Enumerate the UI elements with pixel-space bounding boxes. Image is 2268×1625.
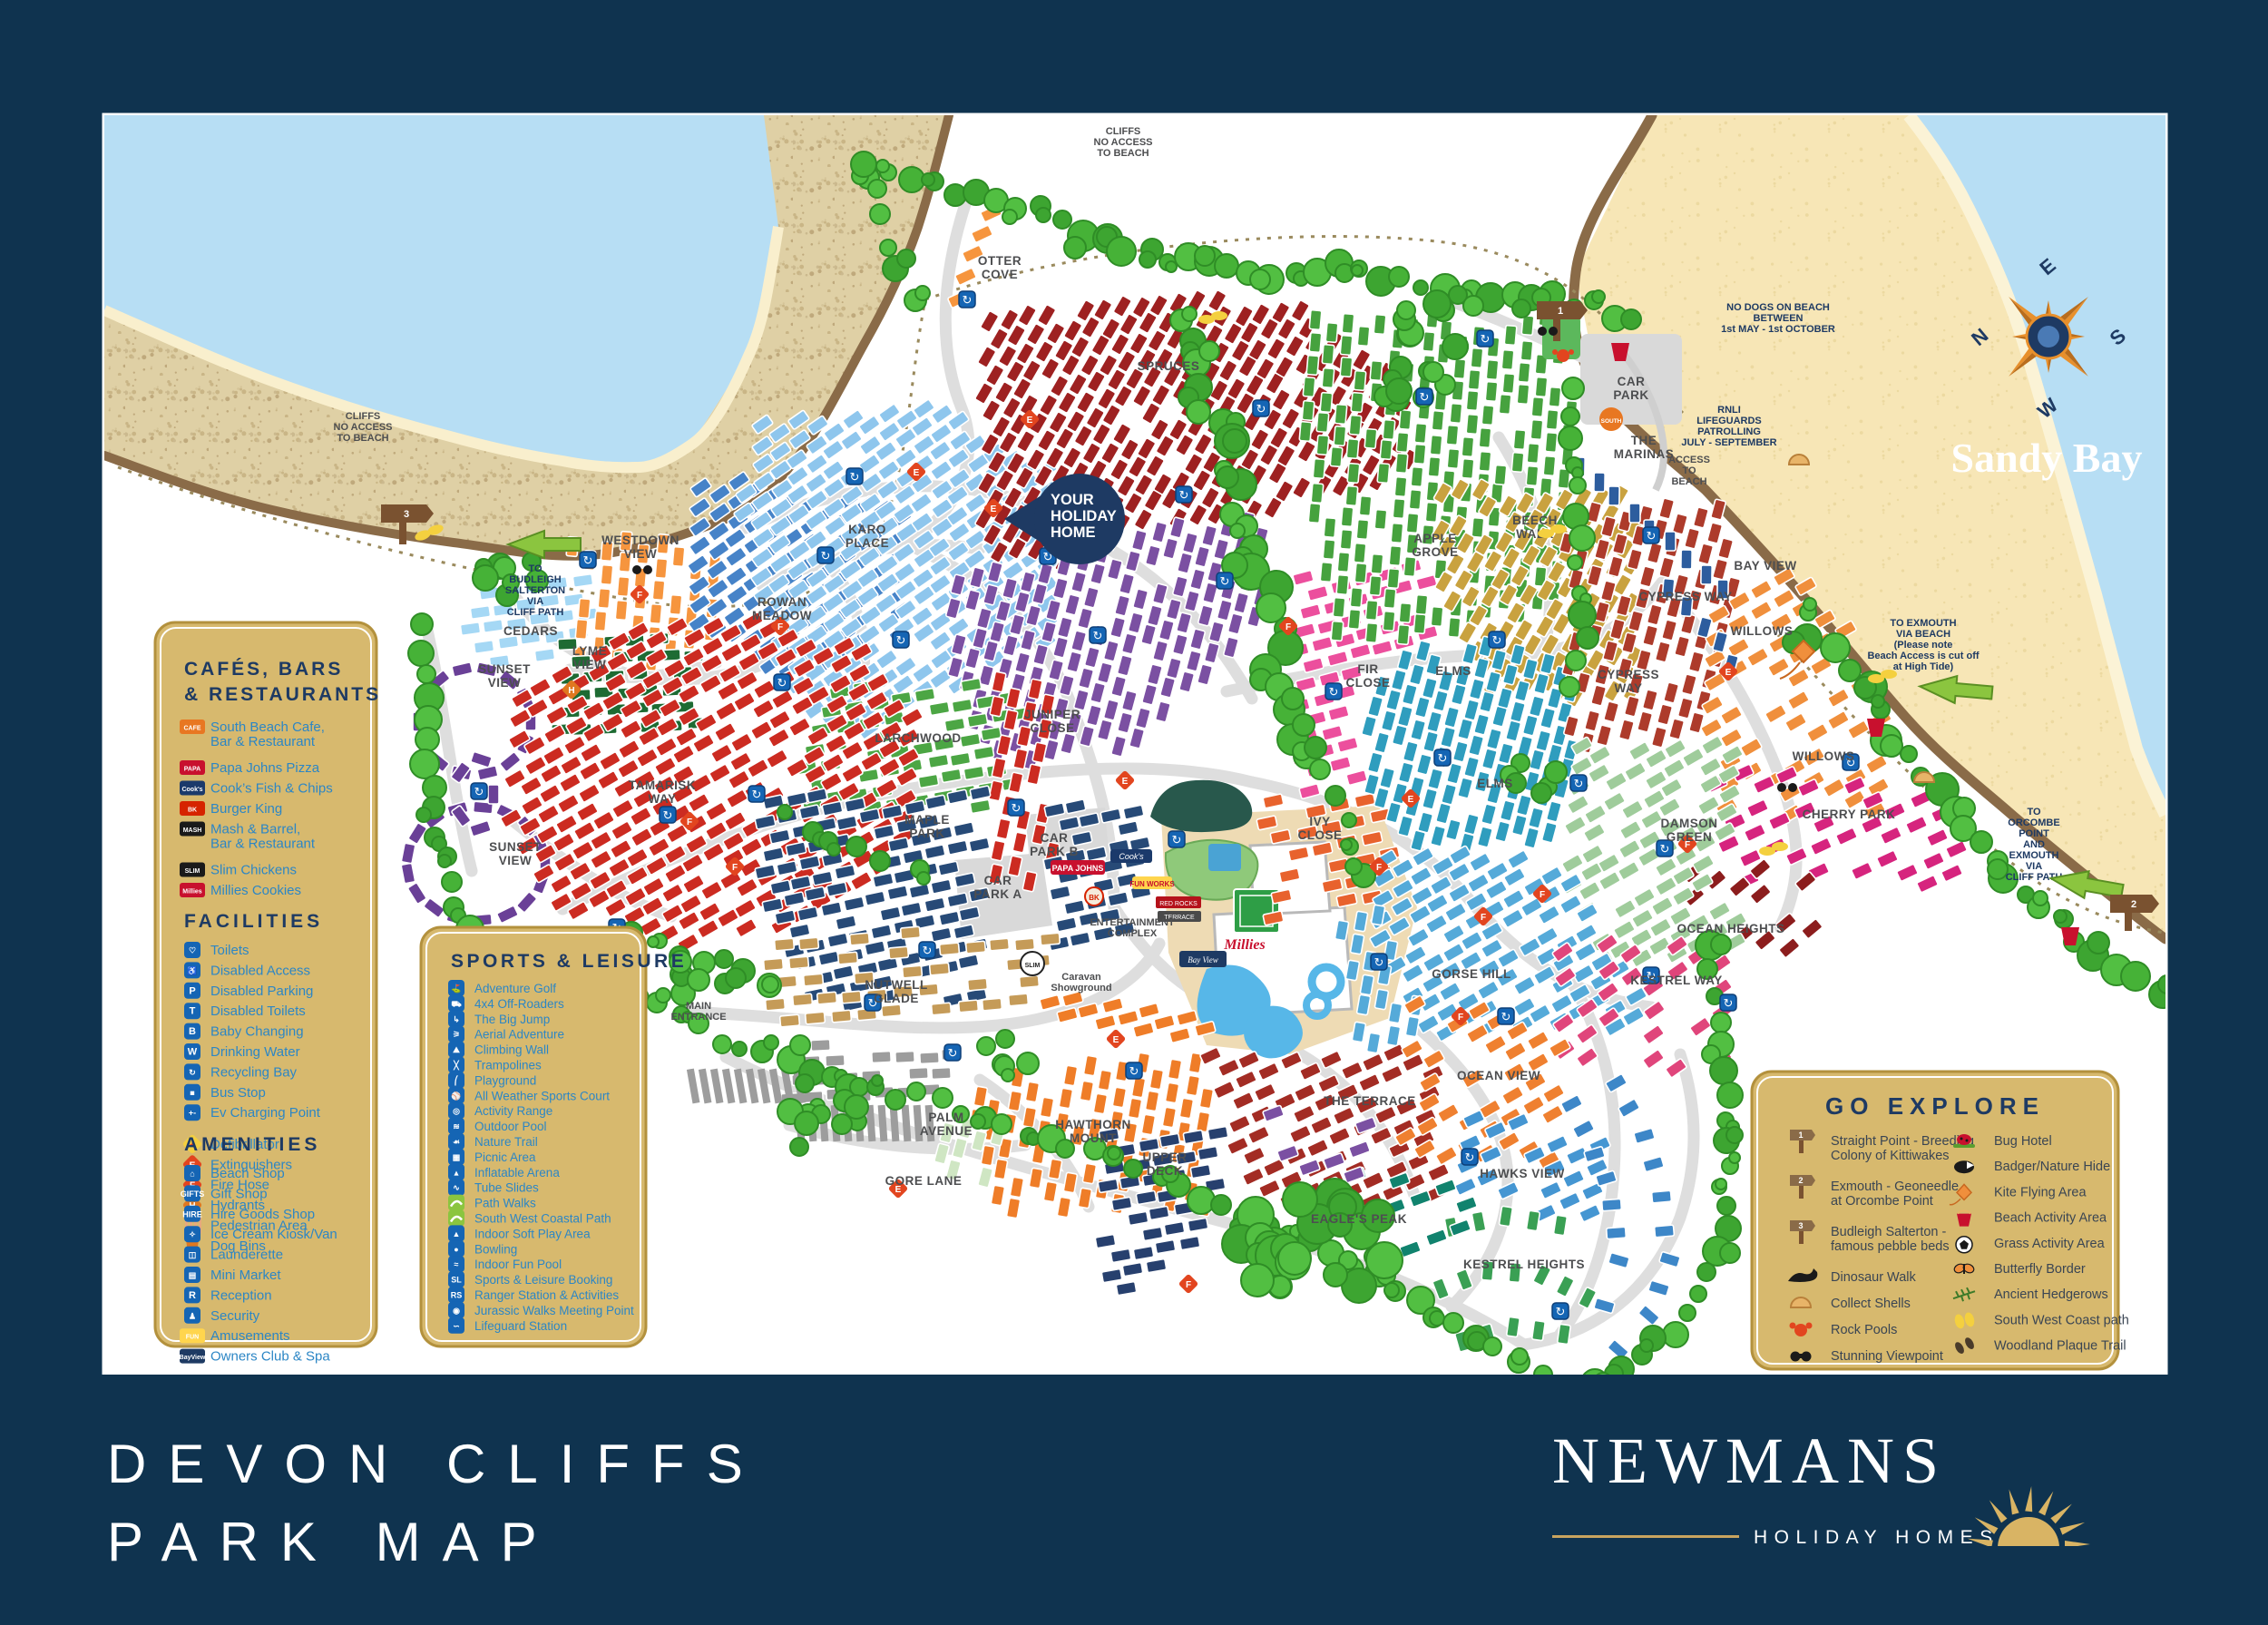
- svg-text:HOLIDAY: HOLIDAY: [1051, 508, 1117, 524]
- svg-text:F: F: [1458, 1013, 1463, 1023]
- svg-text:All Weather Sports Court: All Weather Sports Court: [474, 1089, 610, 1102]
- svg-text:MAPLE: MAPLE: [904, 813, 950, 827]
- svg-text:EAGLE'S PEAK: EAGLE'S PEAK: [1311, 1212, 1407, 1226]
- svg-text:BUDLEIGH: BUDLEIGH: [509, 574, 562, 585]
- svg-text:Papa Johns Pizza: Papa Johns Pizza: [210, 760, 320, 776]
- svg-text:↻: ↻: [1438, 751, 1448, 765]
- svg-text:Sports & Leisure Booking: Sports & Leisure Booking: [474, 1273, 612, 1287]
- svg-text:T: T: [190, 1006, 196, 1017]
- svg-text:AVENUE: AVENUE: [920, 1124, 973, 1138]
- svg-text:↻: ↻: [583, 553, 593, 567]
- svg-text:Indoor Fun Pool: Indoor Fun Pool: [474, 1258, 562, 1271]
- svg-text:Dinosaur Walk: Dinosaur Walk: [1831, 1270, 1916, 1285]
- svg-text:Millies: Millies: [1223, 937, 1265, 953]
- svg-text:↻: ↻: [948, 1046, 958, 1060]
- svg-text:↻: ↻: [1556, 1305, 1566, 1318]
- svg-text:BEECH: BEECH: [1512, 514, 1558, 527]
- svg-text:≈: ≈: [455, 1260, 459, 1269]
- svg-text:↳: ↳: [453, 1014, 460, 1023]
- svg-text:CLOSE: CLOSE: [1345, 676, 1390, 690]
- svg-text:E: E: [1408, 795, 1414, 805]
- svg-text:WESTDOWN: WESTDOWN: [601, 534, 679, 547]
- svg-text:✧: ✧: [189, 1230, 196, 1239]
- svg-text:ENTERTAINMENT: ENTERTAINMENT: [1090, 917, 1175, 928]
- svg-text:Caravan: Caravan: [1061, 972, 1101, 983]
- svg-text:◎: ◎: [453, 1107, 460, 1116]
- svg-text:PAPA: PAPA: [184, 767, 200, 773]
- svg-text:Jurassic Walks Meeting Point: Jurassic Walks Meeting Point: [474, 1304, 634, 1317]
- svg-text:Disabled Access: Disabled Access: [210, 963, 310, 978]
- svg-text:↻: ↻: [189, 1068, 196, 1077]
- svg-text:♡: ♡: [189, 946, 196, 955]
- svg-text:DECK: DECK: [1147, 1164, 1183, 1178]
- svg-text:Bus Stop: Bus Stop: [210, 1085, 266, 1101]
- svg-text:Toilets: Toilets: [210, 943, 249, 958]
- svg-text:H: H: [568, 686, 574, 696]
- svg-text:ROWAN: ROWAN: [758, 595, 807, 609]
- svg-text:↻: ↻: [474, 785, 484, 798]
- svg-text:KESTREL WAY: KESTREL WAY: [1630, 974, 1723, 987]
- svg-text:(Please note: (Please note: [1894, 640, 1953, 651]
- svg-text:TO EXMOUTH: TO EXMOUTH: [1890, 618, 1956, 629]
- svg-text:Budleigh Salterton -: Budleigh Salterton -: [1831, 1225, 1947, 1239]
- svg-text:Mash & Barrel,: Mash & Barrel,: [210, 822, 300, 837]
- svg-text:Kite Flying Area: Kite Flying Area: [1994, 1185, 2087, 1199]
- svg-text:FIR: FIR: [1357, 662, 1378, 676]
- svg-text:Playground: Playground: [474, 1073, 536, 1087]
- svg-text:R: R: [189, 1290, 196, 1301]
- svg-text:HAWKS VIEW: HAWKS VIEW: [1480, 1167, 1565, 1180]
- svg-text:↻: ↻: [1374, 955, 1384, 969]
- svg-text:↻: ↻: [1220, 574, 1230, 588]
- svg-text:NUTWELL: NUTWELL: [865, 978, 927, 992]
- svg-text:Baby Changing: Baby Changing: [210, 1024, 304, 1040]
- svg-text:TO: TO: [1682, 465, 1696, 476]
- svg-text:Climbing Wall: Climbing Wall: [474, 1043, 549, 1057]
- svg-text:Nature Trail: Nature Trail: [474, 1135, 538, 1149]
- svg-text:TO BEACH: TO BEACH: [337, 433, 388, 444]
- svg-text:CYPRESS: CYPRESS: [1598, 668, 1659, 681]
- svg-text:F: F: [1186, 1280, 1191, 1290]
- svg-text:SLIM: SLIM: [1025, 963, 1041, 969]
- svg-text:PAPA JOHNS: PAPA JOHNS: [1052, 864, 1104, 873]
- svg-text:Straight Point - Breeding: Straight Point - Breeding: [1831, 1134, 1974, 1149]
- svg-text:OTTER: OTTER: [978, 254, 1022, 268]
- svg-text:at Orcombe Point: at Orcombe Point: [1831, 1194, 1933, 1209]
- svg-text:Badger/Nature Hide: Badger/Nature Hide: [1994, 1160, 2110, 1174]
- svg-text:LARCHWOOD: LARCHWOOD: [875, 731, 961, 745]
- svg-text:Bar & Restaurant: Bar & Restaurant: [210, 837, 316, 852]
- svg-text:F: F: [1286, 622, 1291, 632]
- svg-text:P: P: [189, 985, 195, 996]
- svg-text:South West Coast path: South West Coast path: [1994, 1313, 2129, 1327]
- svg-text:ENTRANCE: ENTRANCE: [670, 1012, 726, 1023]
- svg-text:Disabled Toilets: Disabled Toilets: [210, 1003, 306, 1019]
- svg-text:Grass Activity Area: Grass Activity Area: [1994, 1237, 2106, 1251]
- svg-text:MARINAS: MARINAS: [1614, 447, 1675, 461]
- svg-text:Bowling: Bowling: [474, 1242, 517, 1256]
- svg-text:VIA BEACH: VIA BEACH: [1896, 629, 1950, 640]
- svg-text:MASH: MASH: [183, 827, 202, 834]
- svg-text:ELMS: ELMS: [1435, 664, 1471, 678]
- svg-text:3: 3: [1798, 1221, 1803, 1230]
- svg-text:FUN: FUN: [186, 1335, 199, 1341]
- svg-text:CAR: CAR: [1618, 375, 1646, 388]
- svg-text:CAFÉS, BARS: CAFÉS, BARS: [184, 659, 343, 680]
- svg-text:COMPLEX: COMPLEX: [1108, 928, 1158, 939]
- svg-text:SUNSET: SUNSET: [478, 662, 531, 676]
- svg-text:HOLIDAY HOMES: HOLIDAY HOMES: [1754, 1527, 1999, 1548]
- svg-text:WAY: WAY: [648, 792, 676, 806]
- svg-text:Launderette: Launderette: [210, 1248, 283, 1263]
- svg-text:↻: ↻: [1012, 801, 1022, 815]
- svg-text:≋: ≋: [453, 1122, 460, 1131]
- svg-text:PLACE: PLACE: [846, 536, 889, 550]
- svg-text:↻: ↻: [1481, 332, 1491, 346]
- svg-text:Tube Slides: Tube Slides: [474, 1181, 539, 1195]
- svg-text:▦: ▦: [453, 1152, 461, 1161]
- svg-text:↻: ↻: [1329, 685, 1339, 699]
- svg-text:⎛: ⎛: [455, 1075, 459, 1086]
- svg-text:CAR: CAR: [984, 874, 1012, 887]
- svg-text:RNLI: RNLI: [1717, 405, 1741, 416]
- svg-text:OCEAN VIEW: OCEAN VIEW: [1457, 1069, 1540, 1082]
- svg-text:BAY VIEW: BAY VIEW: [1734, 559, 1796, 573]
- svg-text:↻: ↻: [1492, 633, 1502, 647]
- svg-text:↻: ↻: [1465, 1150, 1475, 1164]
- svg-text:F: F: [777, 622, 783, 632]
- svg-text:Colony of Kittiwakes: Colony of Kittiwakes: [1831, 1149, 1950, 1163]
- svg-text:VIEW: VIEW: [499, 854, 533, 867]
- svg-text:↻: ↻: [963, 293, 973, 307]
- svg-text:↻: ↻: [1256, 402, 1266, 416]
- svg-text:MEADOW: MEADOW: [752, 609, 812, 622]
- svg-text:↻: ↻: [752, 788, 762, 801]
- svg-text:●: ●: [454, 1245, 458, 1254]
- svg-text:⛟: ⛟: [451, 999, 462, 1008]
- svg-text:VIEW: VIEW: [573, 658, 607, 671]
- svg-text:VIEW: VIEW: [488, 676, 522, 690]
- svg-text:PATROLLING: PATROLLING: [1697, 426, 1761, 437]
- svg-text:Rock Pools: Rock Pools: [1831, 1323, 1897, 1337]
- svg-text:NO DOGS ON BEACH: NO DOGS ON BEACH: [1726, 302, 1830, 313]
- svg-text:LIFEGUARDS: LIFEGUARDS: [1696, 416, 1762, 426]
- svg-text:⚞: ⚞: [453, 1030, 460, 1039]
- svg-text:Woodland Plaque Trail: Woodland Plaque Trail: [1994, 1339, 2126, 1354]
- svg-text:COVE: COVE: [982, 268, 1018, 281]
- svg-text:PARK MAP: PARK MAP: [107, 1512, 559, 1572]
- svg-text:FACILITIES: FACILITIES: [184, 911, 323, 932]
- svg-text:Millies: Millies: [182, 889, 202, 896]
- svg-text:Drinking Water: Drinking Water: [210, 1044, 300, 1060]
- svg-text:F: F: [1376, 863, 1382, 873]
- svg-text:THE TERRACE: THE TERRACE: [1324, 1094, 1416, 1108]
- svg-text:SLIM: SLIM: [185, 868, 200, 875]
- svg-text:CLOSE: CLOSE: [1297, 828, 1342, 842]
- svg-text:HIRE: HIRE: [182, 1209, 202, 1219]
- svg-text:Millies Cookies: Millies Cookies: [210, 883, 301, 898]
- svg-text:Beach Shop: Beach Shop: [210, 1166, 285, 1181]
- svg-text:PARK: PARK: [909, 827, 944, 840]
- svg-text:THE: THE: [1631, 434, 1657, 447]
- svg-text:BEACH: BEACH: [1671, 476, 1706, 487]
- svg-text:Bay View: Bay View: [1188, 955, 1218, 964]
- svg-text:▴: ▴: [454, 1168, 459, 1177]
- svg-text:Disabled Parking: Disabled Parking: [210, 984, 313, 999]
- svg-text:DEVON CLIFFS: DEVON CLIFFS: [107, 1434, 765, 1494]
- svg-text:ELMS: ELMS: [1477, 777, 1513, 790]
- svg-text:VIA: VIA: [2026, 861, 2042, 872]
- svg-text:Bar & Restaurant: Bar & Restaurant: [210, 734, 316, 749]
- svg-text:Ranger Station & Activities: Ranger Station & Activities: [474, 1288, 619, 1302]
- svg-text:RED ROCKS: RED ROCKS: [1159, 901, 1198, 907]
- svg-text:Amusements: Amusements: [210, 1328, 290, 1344]
- svg-text:UPPER: UPPER: [1142, 1150, 1187, 1164]
- svg-text:famous pebble beds: famous pebble beds: [1831, 1239, 1950, 1254]
- svg-text:↻: ↻: [1179, 488, 1189, 502]
- svg-text:Reception: Reception: [210, 1287, 272, 1303]
- svg-text:▤: ▤: [189, 1271, 197, 1280]
- svg-text:CAFE: CAFE: [183, 726, 200, 732]
- svg-text:Cook's: Cook's: [1119, 852, 1144, 861]
- svg-text:LYME: LYME: [572, 644, 607, 658]
- svg-text:TO: TO: [528, 563, 543, 574]
- svg-text:NO ACCESS: NO ACCESS: [334, 422, 393, 433]
- svg-text:⛳: ⛳: [451, 984, 461, 994]
- svg-text:Collect Shells: Collect Shells: [1831, 1297, 1911, 1311]
- svg-text:Security: Security: [210, 1308, 260, 1324]
- svg-text:GORSE HILL: GORSE HILL: [1432, 967, 1511, 981]
- svg-text:↻: ↻: [923, 944, 933, 957]
- svg-text:1: 1: [1558, 306, 1563, 317]
- svg-text:↻: ↻: [1172, 833, 1182, 847]
- svg-text:Owners Club & Spa: Owners Club & Spa: [210, 1349, 330, 1365]
- svg-text:Indoor Soft Play Area: Indoor Soft Play Area: [474, 1227, 591, 1240]
- svg-text:WILLOWS: WILLOWS: [1731, 624, 1794, 638]
- svg-text:⌂: ⌂: [190, 1170, 194, 1179]
- svg-text:⚾: ⚾: [450, 1091, 461, 1101]
- svg-text:◉: ◉: [453, 1306, 460, 1315]
- svg-text:▲: ▲: [453, 1229, 461, 1238]
- svg-text:South Beach Cafe,: South Beach Cafe,: [210, 720, 325, 735]
- svg-text:↻: ↻: [1724, 996, 1734, 1010]
- svg-text:SL: SL: [451, 1276, 462, 1285]
- svg-text:⛰: ⛰: [452, 1045, 460, 1054]
- svg-text:2: 2: [2131, 899, 2136, 910]
- svg-text:BETWEEN: BETWEEN: [1754, 313, 1804, 324]
- svg-text:MAIN: MAIN: [686, 1001, 711, 1012]
- svg-text:Trampolines: Trampolines: [474, 1059, 542, 1072]
- svg-text:↻: ↻: [1093, 629, 1103, 642]
- svg-text:Burger King: Burger King: [210, 801, 282, 817]
- svg-text:CHERRY PARK: CHERRY PARK: [1803, 808, 1896, 821]
- svg-text:NEWMANS: NEWMANS: [1552, 1424, 1947, 1497]
- svg-text:WAY: WAY: [1614, 681, 1642, 695]
- svg-text:Outdoor Pool: Outdoor Pool: [474, 1120, 547, 1133]
- svg-text:FUN WORKS: FUN WORKS: [1129, 880, 1175, 888]
- svg-text:+-: +-: [189, 1109, 196, 1118]
- svg-text:WILLOWS: WILLOWS: [1793, 749, 1855, 763]
- svg-text:Mini Market: Mini Market: [210, 1268, 281, 1283]
- svg-text:♿: ♿: [187, 965, 197, 975]
- svg-text:SALTERTON: SALTERTON: [505, 585, 565, 596]
- svg-text:Bug Hotel: Bug Hotel: [1994, 1134, 2052, 1149]
- svg-text:GORE LANE: GORE LANE: [885, 1174, 963, 1188]
- svg-text:E: E: [914, 468, 920, 478]
- svg-text:Cook's: Cook's: [181, 787, 202, 793]
- svg-text:Slim Chickens: Slim Chickens: [210, 863, 297, 878]
- svg-text:4x4 Off-Roaders: 4x4 Off-Roaders: [474, 997, 564, 1011]
- svg-text:↻: ↻: [821, 549, 831, 563]
- svg-text:Picnic Area: Picnic Area: [474, 1150, 536, 1164]
- svg-text:E: E: [1027, 416, 1033, 426]
- svg-text:PARK B: PARK B: [1030, 845, 1079, 858]
- svg-text:Showground: Showground: [1051, 983, 1111, 994]
- svg-text:W: W: [188, 1047, 198, 1058]
- svg-text:E: E: [1113, 1035, 1119, 1045]
- svg-text:F: F: [687, 817, 692, 827]
- svg-text:CAR: CAR: [1041, 831, 1069, 845]
- svg-text:↻: ↻: [1420, 390, 1430, 404]
- svg-text:Ev Charging Point: Ev Charging Point: [210, 1105, 321, 1121]
- svg-text:Exmouth - Geoneedle: Exmouth - Geoneedle: [1831, 1180, 1959, 1194]
- svg-text:CYPRESS WAY: CYPRESS WAY: [1638, 590, 1732, 603]
- svg-text:◫: ◫: [189, 1250, 197, 1259]
- svg-text:↻: ↻: [1129, 1064, 1139, 1078]
- svg-text:KARO: KARO: [848, 523, 886, 536]
- svg-text:B: B: [189, 1026, 196, 1037]
- svg-text:TAMARISK: TAMARISK: [629, 778, 696, 792]
- svg-text:∽: ∽: [453, 1321, 460, 1330]
- svg-text:Ancient Hedgerows: Ancient Hedgerows: [1994, 1287, 2108, 1302]
- svg-text:DAMSON: DAMSON: [1661, 817, 1718, 830]
- svg-text:Stunning Viewpoint: Stunning Viewpoint: [1831, 1349, 1943, 1364]
- svg-text:Beach Access is cut off: Beach Access is cut off: [1867, 651, 1979, 661]
- svg-text:PALM: PALM: [928, 1111, 963, 1124]
- svg-text:1: 1: [1798, 1131, 1803, 1140]
- svg-text:↻: ↻: [1660, 842, 1670, 856]
- svg-text:APPLE: APPLE: [1413, 532, 1457, 545]
- svg-text:GROVE: GROVE: [1412, 545, 1458, 559]
- svg-text:HOME: HOME: [1051, 524, 1096, 541]
- svg-text:BayView: BayView: [180, 1355, 206, 1361]
- svg-text:POINT: POINT: [2019, 828, 2049, 839]
- svg-text:SUNSET: SUNSET: [489, 840, 542, 854]
- svg-text:TO BEACH: TO BEACH: [1097, 148, 1149, 159]
- svg-text:Lifeguard Station: Lifeguard Station: [474, 1319, 567, 1333]
- svg-text:CLIFFS: CLIFFS: [1106, 126, 1141, 137]
- svg-text:Ice Cream Kiosk/Van: Ice Cream Kiosk/Van: [210, 1227, 337, 1242]
- svg-text:Inflatable Arena: Inflatable Arena: [474, 1166, 560, 1180]
- svg-text:JUNIPER: JUNIPER: [1024, 708, 1080, 721]
- svg-text:↻: ↻: [663, 808, 673, 822]
- svg-text:IVY: IVY: [1309, 815, 1330, 828]
- svg-text:E: E: [991, 504, 997, 514]
- svg-text:at High Tide): at High Tide): [1893, 661, 1954, 672]
- svg-text:HAWTHORN: HAWTHORN: [1055, 1118, 1131, 1131]
- svg-text:Recycling Bay: Recycling Bay: [210, 1064, 298, 1080]
- svg-text:Butterfly Border: Butterfly Border: [1994, 1262, 2086, 1277]
- svg-text:GLADE: GLADE: [874, 992, 919, 1005]
- svg-text:Activity Range: Activity Range: [474, 1104, 552, 1118]
- svg-text:Hire Goods Shop: Hire Goods Shop: [210, 1207, 315, 1222]
- svg-text:♟: ♟: [189, 1311, 196, 1320]
- svg-text:↻: ↻: [850, 470, 860, 484]
- svg-text:2: 2: [1798, 1176, 1803, 1185]
- svg-text:ACCESS: ACCESS: [1668, 455, 1710, 465]
- svg-text:E: E: [1122, 777, 1129, 787]
- svg-text:Beach Activity Area: Beach Activity Area: [1994, 1211, 2107, 1226]
- svg-text:3: 3: [404, 509, 409, 520]
- svg-text:EXMOUTH: EXMOUTH: [2009, 850, 2059, 861]
- svg-text:CLOSE: CLOSE: [1030, 721, 1074, 735]
- svg-text:Gift Shop: Gift Shop: [210, 1186, 268, 1201]
- svg-text:AMENITIES: AMENITIES: [184, 1134, 320, 1155]
- svg-text:↻: ↻: [1647, 529, 1657, 543]
- svg-text:YOUR: YOUR: [1051, 492, 1094, 508]
- svg-text:Aerial Adventure: Aerial Adventure: [474, 1028, 564, 1042]
- svg-text:Cook’s Fish & Chips: Cook’s Fish & Chips: [210, 781, 333, 797]
- svg-text:↻: ↻: [1574, 777, 1584, 790]
- svg-text:VIA: VIA: [527, 596, 543, 607]
- svg-text:VIEW: VIEW: [624, 547, 658, 561]
- svg-text:CLIFFS: CLIFFS: [346, 411, 381, 422]
- svg-text:GREEN: GREEN: [1667, 830, 1713, 844]
- svg-text:CLIFF PATH: CLIFF PATH: [507, 607, 564, 618]
- svg-text:PARK A: PARK A: [973, 887, 1022, 901]
- svg-text:Path Walks: Path Walks: [474, 1197, 536, 1210]
- svg-text:BK: BK: [1089, 894, 1100, 902]
- svg-text:MOUNT: MOUNT: [1070, 1131, 1117, 1145]
- svg-text:F: F: [732, 863, 738, 873]
- svg-text:F: F: [637, 591, 642, 601]
- svg-text:↻: ↻: [777, 676, 787, 690]
- svg-text:SOUTH: SOUTH: [1601, 418, 1622, 425]
- svg-text:NO ACCESS: NO ACCESS: [1094, 137, 1153, 148]
- svg-text:SPORTS & LEISURE: SPORTS & LEISURE: [451, 951, 687, 972]
- svg-text:GIFTS: GIFTS: [181, 1189, 205, 1199]
- svg-text:☙: ☙: [453, 1138, 460, 1147]
- svg-text:F: F: [1540, 890, 1545, 900]
- svg-text:CEDARS: CEDARS: [503, 624, 558, 638]
- svg-text:The Big Jump: The Big Jump: [474, 1013, 550, 1026]
- svg-text:Adventure Golf: Adventure Golf: [474, 982, 556, 995]
- svg-text:F: F: [1481, 913, 1486, 923]
- svg-text:E: E: [1725, 668, 1732, 678]
- svg-text:RS: RS: [451, 1291, 463, 1300]
- svg-text:TO: TO: [2027, 807, 2041, 817]
- svg-text:PARK: PARK: [1613, 388, 1648, 402]
- svg-text:∿: ∿: [453, 1183, 460, 1192]
- svg-text:Sandy Bay: Sandy Bay: [1951, 435, 2143, 481]
- svg-text:↻: ↻: [1501, 1010, 1511, 1023]
- svg-text:BK: BK: [188, 808, 197, 814]
- svg-text:& RESTAURANTS: & RESTAURANTS: [184, 684, 381, 705]
- svg-text:1st MAY - 1st OCTOBER: 1st MAY - 1st OCTOBER: [1721, 324, 1835, 335]
- svg-text:ORCOMBE: ORCOMBE: [2008, 817, 2059, 828]
- svg-text:OCEAN HEIGHTS: OCEAN HEIGHTS: [1677, 922, 1784, 935]
- svg-text:GO EXPLORE: GO EXPLORE: [1825, 1092, 2045, 1120]
- svg-text:AND: AND: [2023, 839, 2045, 850]
- svg-text:SPRUCES: SPRUCES: [1138, 359, 1200, 373]
- svg-text:JULY - SEPTEMBER: JULY - SEPTEMBER: [1681, 437, 1776, 448]
- svg-text:South West Coastal Path: South West Coastal Path: [474, 1212, 611, 1226]
- svg-text:KESTREL HEIGHTS: KESTREL HEIGHTS: [1463, 1258, 1585, 1271]
- svg-text:■: ■: [190, 1088, 194, 1097]
- svg-text:↻: ↻: [896, 633, 906, 647]
